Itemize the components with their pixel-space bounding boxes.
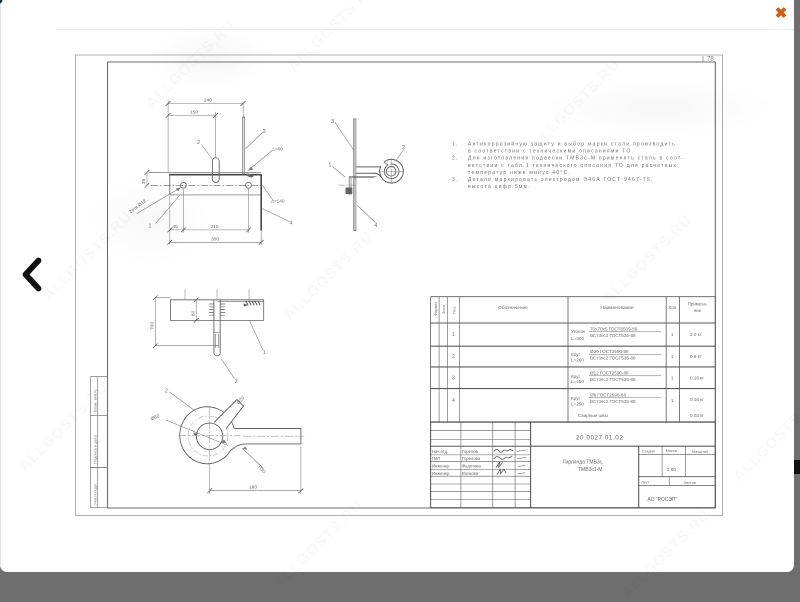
svg-text:Подпись и дата: Подпись и дата [93,434,98,464]
svg-text:60: 60 [190,310,195,316]
svg-text:Круг: Круг [571,352,580,357]
svg-text:Ø12 ГОСТ2590-88: Ø12 ГОСТ2590-88 [590,371,629,376]
svg-text:0.16 кг: 0.16 кг [690,376,704,381]
svg-text:4: 4 [375,223,378,229]
svg-text:ГИП: ГИП [432,456,440,461]
svg-text:Инженер: Инженер [432,471,450,476]
svg-text:Лист: Лист [641,481,650,485]
svg-text:Горелов: Горелов [462,449,479,454]
svg-text:1: 1 [263,350,266,356]
svg-text:Зона: Зона [441,304,446,314]
svg-text:2: 2 [402,145,405,151]
svg-text:1: 1 [452,332,455,338]
svg-text:0.6 кг: 0.6 кг [690,354,702,359]
svg-text:△≈140: △≈140 [271,199,285,204]
svg-text:Инженер: Инженер [432,464,450,469]
svg-text:3.: 3. [452,177,459,183]
svg-text:Нач.отд.: Нач.отд. [432,449,448,454]
svg-text:1: 1 [329,163,332,169]
svg-text:температур ниже минус 40°С.: температур ниже минус 40°С. [468,170,571,176]
svg-text:35: 35 [141,178,146,184]
svg-text:Антикоррозийную защиту и вы: Антикоррозийную защиту и выбор марки ста… [468,141,676,148]
svg-text:2.80: 2.80 [667,467,677,473]
svg-text:70х70х5 ГОСТ8509-86: 70х70х5 ГОСТ8509-86 [590,327,638,332]
svg-text:210: 210 [211,224,219,230]
svg-text:2отв.Ø12: 2отв.Ø12 [128,198,147,214]
svg-text:1: 1 [671,398,674,403]
svg-text:L=250: L=250 [571,402,584,407]
svg-text:45: 45 [173,224,179,230]
svg-text:Взам. инв.N: Взам. инв.N [93,390,98,412]
svg-text:Примеча-: Примеча- [688,302,708,307]
svg-text:Наименование: Наименование [600,305,634,311]
svg-text:Стадия: Стадия [642,450,655,454]
svg-text:АО "РОСЭП": АО "РОСЭП" [647,497,677,503]
svg-text:3: 3 [331,119,334,125]
svg-text:300: 300 [211,237,219,243]
svg-text:Федотова: Федотова [462,464,481,469]
svg-text:Для изготовления подвески Т: Для изготовления подвески ТМВ3с-М примен… [468,156,684,162]
svg-text:180: 180 [249,485,257,491]
svg-text:Ø20: Ø20 [236,395,246,405]
svg-text:Инв.N подл.: Инв.N подл. [93,483,98,505]
svg-text:ВСт3пс2 ГОСТ535-88: ВСт3пс2 ГОСТ535-88 [590,377,636,382]
svg-text:2.0 кг: 2.0 кг [690,332,702,337]
svg-text:Формат: Формат [433,302,438,316]
svg-text:Уголок: Уголок [571,329,586,334]
svg-text:Волкова: Волкова [462,471,479,476]
svg-text:4: 4 [452,398,455,404]
svg-text:ТМВ3с1-М: ТМВ3с1-М [578,467,602,473]
svg-text:78: 78 [707,57,714,63]
svg-text:ВСт3пс2 ГОСТ535-88: ВСт3пс2 ГОСТ535-88 [590,399,636,404]
svg-text:ветствии с табл.1 техническ: ветствии с табл.1 технического описания … [468,163,677,169]
svg-text:Масштаб: Масштаб [692,450,709,454]
svg-text:Обозначение: Обозначение [498,305,528,311]
svg-text:2: 2 [197,140,200,146]
svg-text:L=450: L=450 [571,379,584,384]
svg-text:Листов: Листов [684,481,696,485]
svg-text:150: 150 [190,110,198,116]
svg-text:1: 1 [671,332,674,337]
svg-text:Масса: Масса [666,449,678,453]
svg-text:Кол.: Кол. [669,305,678,310]
svg-text:3: 3 [452,376,455,382]
svg-text:1: 1 [671,354,674,359]
svg-text:4: 4 [290,220,293,226]
svg-text:Ø20 ГОСТ2590-88: Ø20 ГОСТ2590-88 [590,349,629,354]
svg-text:высота цифр 5мм.: высота цифр 5мм. [468,184,531,190]
svg-text:240: 240 [204,98,212,104]
svg-text:R30: R30 [257,464,267,474]
svg-text:△≈60: △≈60 [272,147,284,152]
svg-text:L=260: L=260 [571,358,584,363]
svg-text:1: 1 [671,376,674,381]
svg-text:2: 2 [165,389,168,395]
svg-text:Ø60: Ø60 [150,413,161,422]
svg-text:2.: 2. [452,156,459,162]
svg-text:Детали маркировать электродо: Детали маркировать электродом Э46А ГОСТ … [468,177,654,183]
svg-text:ние: ние [694,308,702,313]
svg-text:700: 700 [150,322,156,330]
svg-text:L=300: L=300 [571,336,584,341]
svg-text:0.03 кг: 0.03 кг [690,413,704,418]
svg-text:2: 2 [235,379,238,385]
svg-text:1.: 1. [452,142,459,148]
svg-text:0.16 кг: 0.16 кг [690,397,704,402]
svg-text:Гирлянда ТМВ3с,: Гирлянда ТМВ3с, [563,460,604,466]
svg-text:Ø6 ГОСТ2590-88: Ø6 ГОСТ2590-88 [590,393,626,398]
svg-text:ВСт3пс2 ГОСТ535-88: ВСт3пс2 ГОСТ535-88 [590,355,636,360]
svg-text:Горелова: Горелова [462,456,481,461]
svg-text:2: 2 [452,354,455,360]
svg-text:в соответствии с технически: в соответствии с техническими описаниями… [468,149,634,155]
svg-text:Поз.: Поз. [452,306,457,314]
svg-text:3: 3 [263,129,266,135]
svg-text:20.0027 01.02: 20.0027 01.02 [576,435,623,442]
svg-text:Круг: Круг [571,396,580,401]
svg-text:1: 1 [149,224,152,230]
svg-text:ВСт3пс2 ГОСТ535-88: ВСт3пс2 ГОСТ535-88 [590,333,636,338]
svg-text:Сварные швы: Сварные швы [578,413,608,418]
